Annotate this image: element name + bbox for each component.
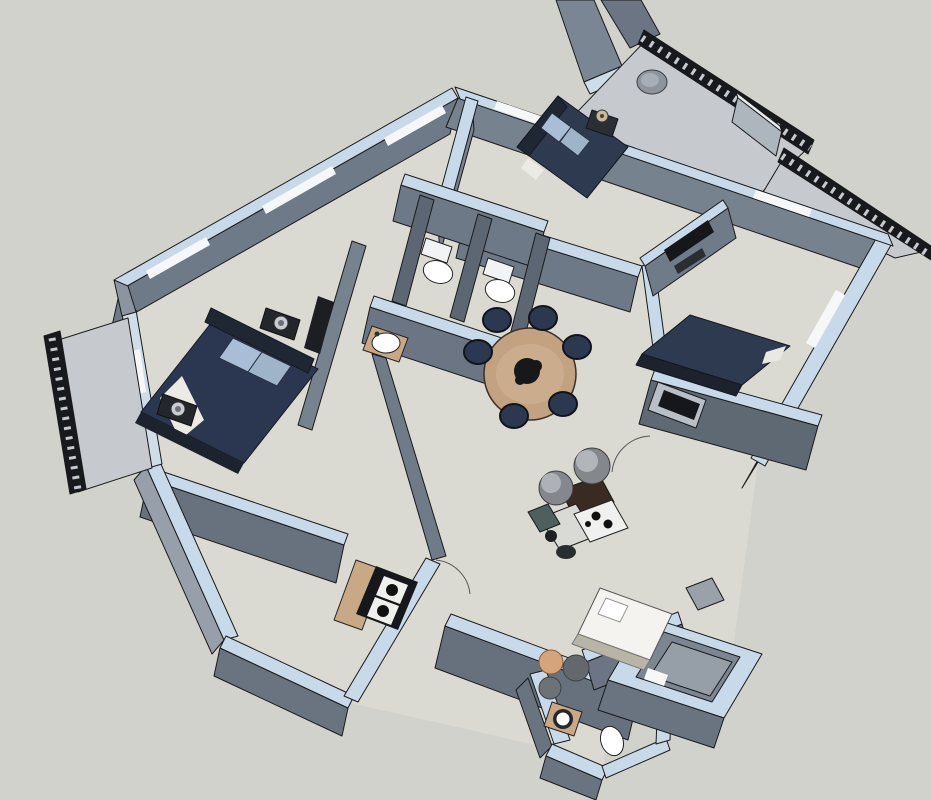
- stove-w-burner-2: [377, 605, 389, 617]
- floorplan-3d-viewport[interactable]: [0, 0, 931, 800]
- lamp-n-core: [600, 114, 604, 118]
- dining-chair-2: [483, 308, 511, 332]
- centerpiece-3: [515, 375, 525, 385]
- figure-gray-2: [539, 677, 561, 699]
- dining-chair-6: [500, 404, 528, 428]
- kitchen-burner-3: [585, 521, 591, 527]
- dining-chair-1: [464, 340, 492, 364]
- figure-tan: [539, 650, 563, 674]
- armchair-n-seat: [641, 73, 659, 87]
- kitchen-burner-1: [592, 512, 601, 521]
- dining-chair-4: [563, 335, 591, 359]
- sink-s-bowl: [556, 712, 570, 726]
- kitchen-kettle: [545, 530, 557, 542]
- kitchen-sink: [556, 545, 576, 559]
- dining-chair-3: [529, 306, 557, 330]
- figure-gray-1: [563, 655, 589, 681]
- lamp-master-1-core: [278, 320, 284, 326]
- dining-chair-5: [549, 392, 577, 416]
- stool-1-top: [541, 473, 561, 493]
- kitchen-burner-2: [604, 520, 613, 529]
- model-stage: [0, 0, 931, 800]
- stool-2-top: [576, 450, 598, 472]
- washbasin-tap: [375, 332, 380, 337]
- stove-w-burner-1: [386, 584, 398, 596]
- lamp-master-2-core: [175, 406, 181, 412]
- centerpiece-2: [530, 360, 542, 372]
